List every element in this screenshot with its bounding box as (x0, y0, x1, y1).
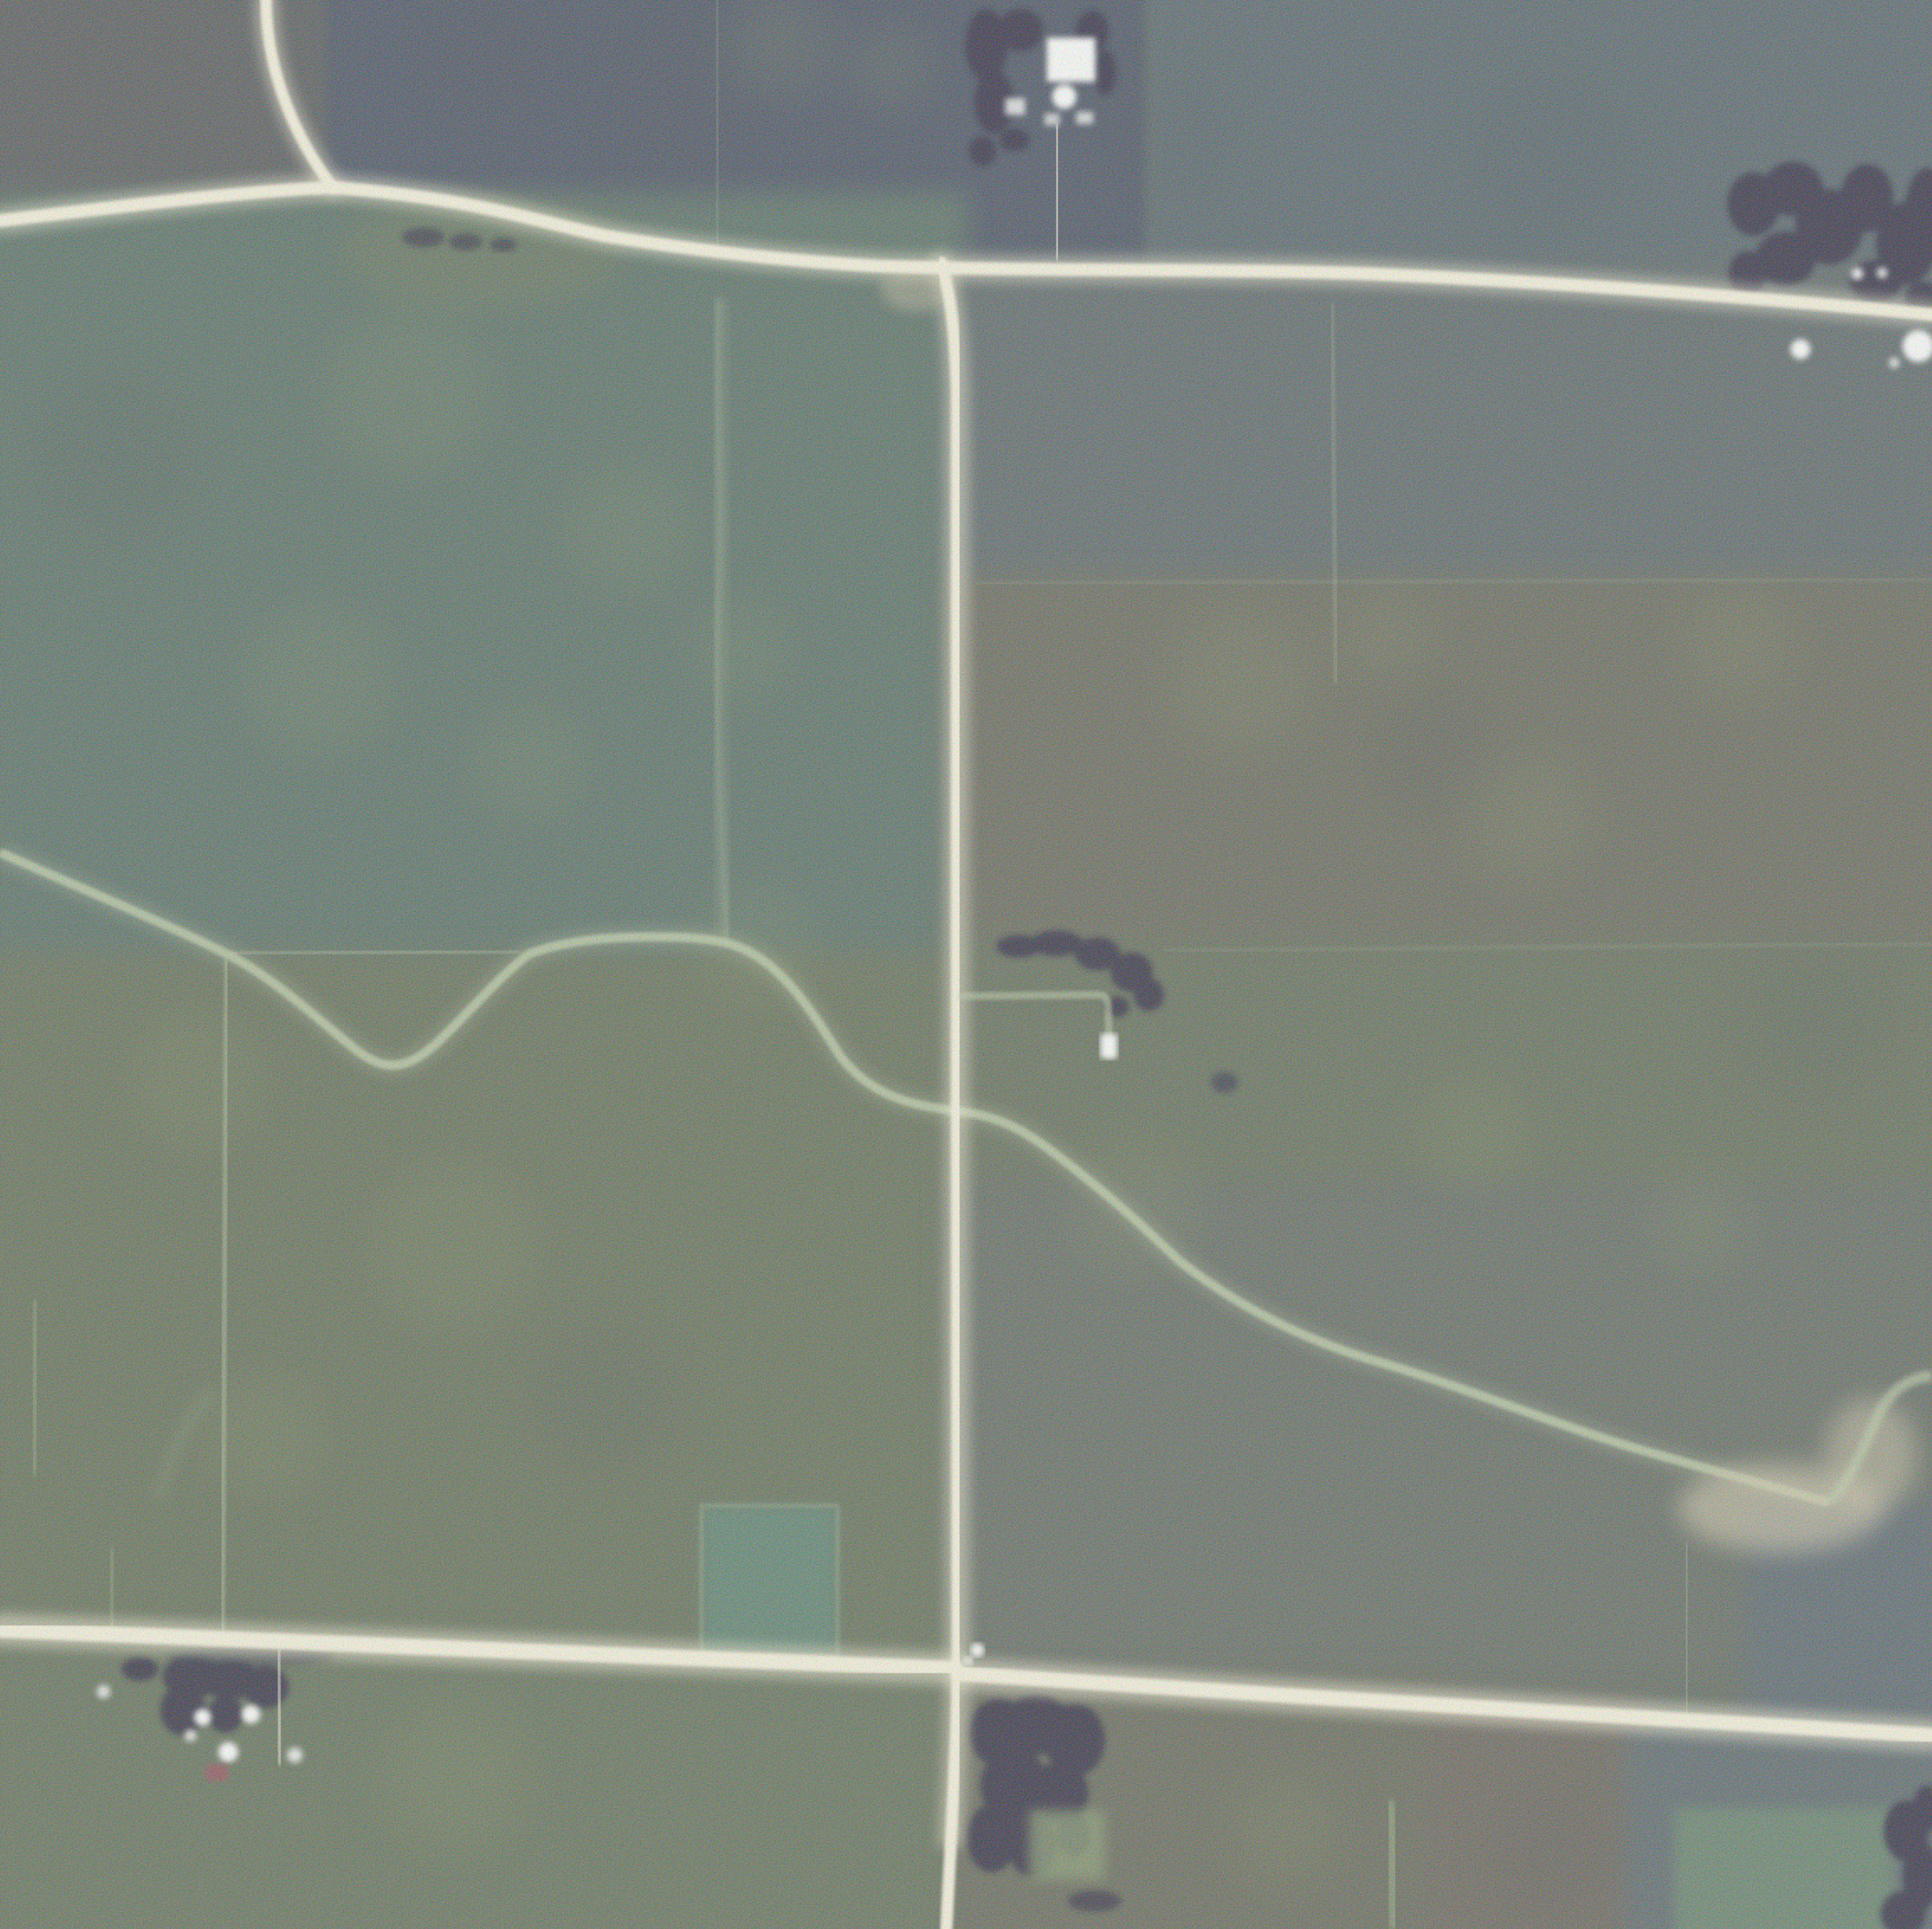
aerial-photo (0, 0, 1932, 1929)
noise-grain-overlay (0, 0, 1932, 1929)
